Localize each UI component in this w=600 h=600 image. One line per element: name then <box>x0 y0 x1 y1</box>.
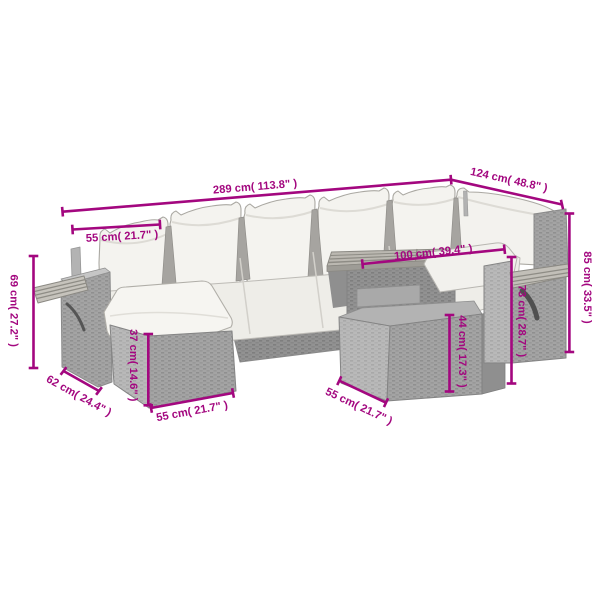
svg-text:85 cm( 33.5" ): 85 cm( 33.5" ) <box>581 251 593 324</box>
svg-text:73 cm( 28.7" ): 73 cm( 28.7" ) <box>515 285 527 358</box>
svg-text:69 cm( 27.2" ): 69 cm( 27.2" ) <box>8 274 20 347</box>
svg-text:44 cm( 17.3" ): 44 cm( 17.3" ) <box>456 315 468 388</box>
svg-text:37 cm( 14.6" ): 37 cm( 14.6" ) <box>127 329 139 402</box>
